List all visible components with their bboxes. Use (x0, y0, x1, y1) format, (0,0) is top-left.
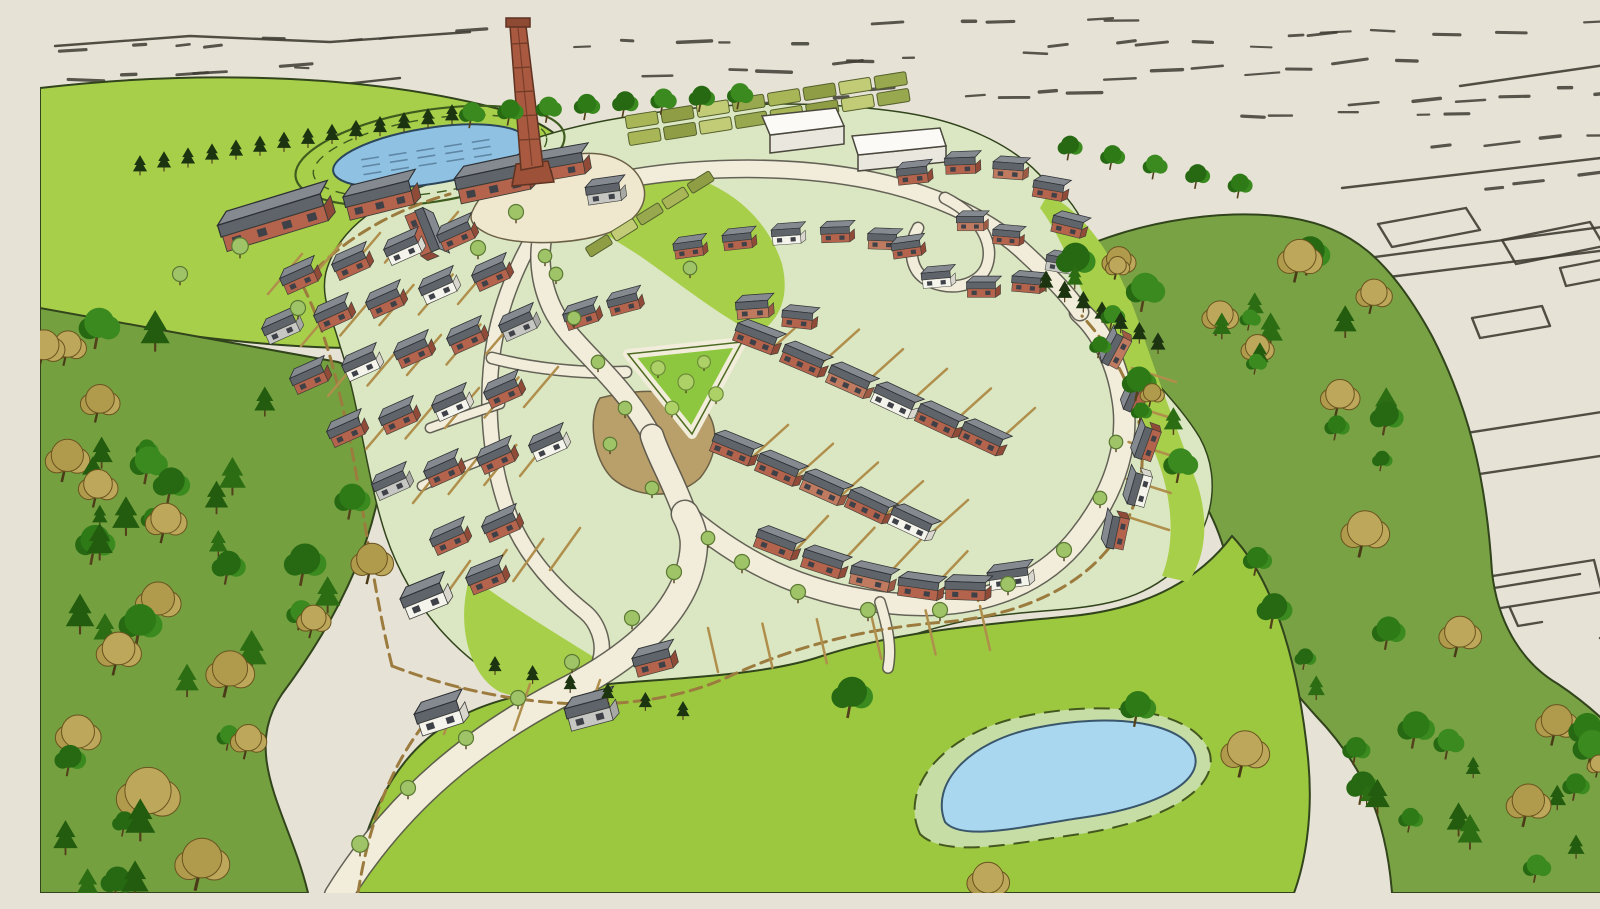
house (735, 293, 776, 319)
masterplan-canvas (40, 16, 1600, 893)
house (921, 264, 958, 288)
masterplan-illustration: Aerial masterplan illustration of a new … (40, 16, 1600, 893)
chimney-cap (506, 18, 530, 27)
house (771, 222, 807, 246)
house (944, 574, 992, 601)
